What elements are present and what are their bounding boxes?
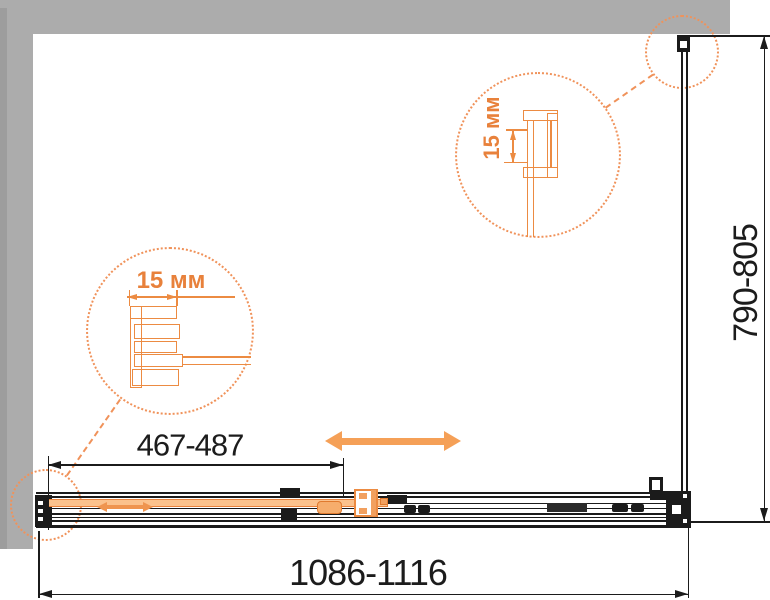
detail-leader-top bbox=[605, 74, 654, 109]
dimension-label-door-width: 467-487 bbox=[137, 430, 244, 461]
door-connector-block-top bbox=[359, 493, 367, 499]
door-roller-3 bbox=[612, 504, 628, 512]
corner-profile-hole-1 bbox=[683, 494, 687, 498]
wall-band-top bbox=[0, 0, 730, 34]
extension-line-total-right bbox=[688, 528, 690, 598]
callout-left-dim-line bbox=[127, 296, 235, 298]
door-roller-2 bbox=[418, 505, 430, 513]
dimension-arrowhead-depth-up bbox=[760, 36, 768, 49]
wall-band-left-edge bbox=[0, 8, 7, 549]
door-marker-arrow-left bbox=[97, 502, 107, 512]
callout-label-top: 15 мм bbox=[481, 96, 503, 159]
callout-left-profile-bar-c bbox=[134, 341, 177, 353]
slide-direction-arrow-right bbox=[444, 431, 461, 451]
door-left-profile-hole-2 bbox=[38, 509, 43, 513]
door-bracket-top bbox=[280, 488, 300, 497]
door-roller-4 bbox=[631, 504, 644, 512]
dimension-line-door-width bbox=[48, 464, 343, 466]
callout-left-glass-line-bottom bbox=[183, 364, 251, 366]
fixed-panel-clamp bbox=[547, 503, 587, 512]
side-glass-line-right bbox=[686, 52, 688, 491]
extension-line-depth-bottom bbox=[691, 521, 770, 523]
dimension-label-depth: 790-805 bbox=[729, 224, 763, 342]
dimension-label-total-width: 1086-1116 bbox=[289, 555, 447, 591]
callout-top-dim-arrow-up bbox=[510, 130, 516, 140]
dimension-arrowhead-total-left bbox=[39, 590, 52, 598]
dimension-arrowhead-total-right bbox=[675, 590, 688, 598]
door-bracket-bottom bbox=[281, 508, 297, 521]
door-handle bbox=[317, 501, 342, 514]
extension-line-depth-top bbox=[690, 35, 770, 37]
callout-top-glass-line-left bbox=[527, 121, 529, 237]
dimension-arrowhead-door-left bbox=[48, 461, 61, 469]
callout-left-profile-bar-e bbox=[132, 369, 179, 386]
corner-profile-hole-2 bbox=[683, 519, 687, 523]
callout-left-profile-bar-a bbox=[130, 306, 177, 319]
door-roller-1 bbox=[404, 505, 416, 513]
dimension-line-total-width bbox=[39, 594, 689, 596]
slide-direction-arrow-left bbox=[325, 431, 342, 451]
wall-profile-top-inset bbox=[680, 41, 687, 48]
door-marker-arrow-right bbox=[143, 502, 153, 512]
rail-line-7 bbox=[36, 520, 690, 523]
door-left-profile-hole-1 bbox=[38, 501, 43, 505]
callout-left-profile-bar-d bbox=[134, 354, 183, 367]
door-connector-bar bbox=[371, 490, 376, 516]
technical-drawing: 15 мм 15 мм bbox=[0, 0, 770, 600]
door-connector-end-cap bbox=[380, 498, 388, 505]
callout-left-dim-tick-left bbox=[129, 290, 131, 306]
dimension-arrowhead-depth-down bbox=[760, 508, 768, 521]
slide-direction-arrow-shaft bbox=[340, 438, 446, 446]
dimension-arrowhead-door-right bbox=[330, 461, 343, 469]
callout-top-dim-tick-top bbox=[506, 129, 527, 131]
callout-top-profile-wall-inner-line bbox=[550, 121, 552, 167]
callout-top-glass-line-right bbox=[533, 121, 535, 237]
side-glass-line-left bbox=[681, 52, 683, 491]
rail-line-8 bbox=[36, 525, 690, 528]
door-marker-arrow-shaft bbox=[106, 505, 144, 509]
roller-housing bbox=[387, 495, 407, 504]
callout-label-left: 15 мм bbox=[137, 269, 206, 293]
callout-left-glass-line-top bbox=[183, 356, 251, 358]
callout-left-profile-bar-b bbox=[134, 324, 180, 339]
right-bracket-top bbox=[650, 491, 667, 500]
door-left-profile-hole-3 bbox=[38, 517, 43, 521]
corner-profile-inset bbox=[672, 505, 681, 514]
callout-top-dim-tick-bottom bbox=[504, 162, 527, 164]
door-connector-block-bottom bbox=[359, 508, 367, 514]
extension-line-total-left bbox=[38, 531, 40, 598]
